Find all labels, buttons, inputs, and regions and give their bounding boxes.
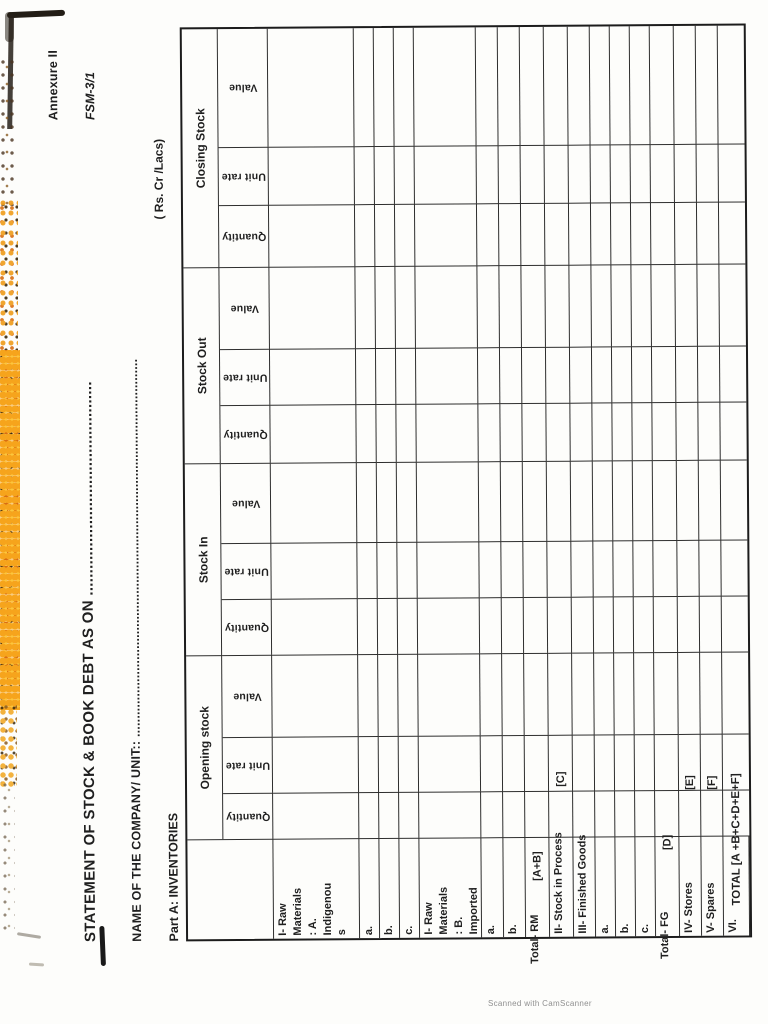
grid-cell [653, 460, 678, 540]
grid-cell [723, 733, 749, 789]
grid-cell [573, 735, 595, 791]
grid-cell [354, 28, 375, 146]
group-header-label: Stock Out [194, 337, 208, 394]
grid-cell [358, 654, 379, 736]
grid-cell [571, 461, 594, 541]
scan-speckle-strip [0, 350, 20, 710]
grid-cell [399, 792, 419, 838]
grid-cell [417, 541, 479, 597]
row-label-cell: Total- FG[D] [655, 836, 680, 936]
grid-cell [502, 653, 525, 735]
row-label-cell: b. [615, 836, 636, 936]
row-label: a. [595, 837, 613, 936]
row-label-cell: a. [481, 837, 504, 937]
grid-cell [722, 595, 748, 651]
grid-cell [500, 403, 522, 461]
grid-cell [268, 28, 355, 147]
grid-cell [634, 596, 654, 652]
grid-cell [501, 541, 523, 597]
group-header: Stock In [185, 463, 222, 655]
document-content: Annexure II FSM-3/1 STATEMENT OF STOCK &… [0, 0, 768, 1024]
grid-cell [525, 735, 549, 791]
grid-cell [720, 345, 746, 401]
grid-cell [395, 266, 416, 348]
grid-cell [356, 404, 376, 462]
grid-cell [651, 144, 675, 202]
grid-cell [698, 346, 720, 402]
grid-cell [721, 459, 748, 539]
grid-cell [503, 791, 525, 837]
grid-cell [520, 27, 545, 145]
grid-cell [270, 348, 356, 405]
grid-cell [593, 460, 614, 540]
column-header-label: Unit rate [221, 170, 265, 182]
grid-cell [398, 598, 418, 654]
grid-cell [397, 542, 417, 598]
column-header: Unit rate [223, 737, 273, 793]
grid-cell [545, 203, 569, 265]
grid-cell [615, 734, 635, 790]
grid-cell [270, 404, 356, 463]
column-header: Quantity [223, 793, 273, 839]
grid-cell [375, 146, 395, 204]
grid-cell [675, 144, 697, 202]
pen-dash-mark [99, 926, 106, 966]
grid-cell [269, 266, 356, 349]
grid-cell [503, 735, 525, 791]
row-label-cell: Total- RM[A+B] [525, 837, 550, 937]
grid-cell [652, 346, 676, 402]
grid-cell [594, 596, 614, 652]
grid-cell [653, 540, 677, 596]
form-number: FSM-3/1 [83, 72, 97, 120]
grid-cell [719, 143, 745, 201]
column-header-label: Unit rate [222, 371, 266, 383]
grid-cell [499, 265, 522, 347]
grid-cell [521, 265, 546, 347]
grid-cell [416, 347, 478, 403]
grid-cell [592, 346, 612, 402]
grid-cell [379, 792, 399, 838]
grid-cell [521, 145, 545, 203]
column-header: Unit rate [219, 147, 269, 205]
grid-cell [415, 265, 478, 347]
grid-cell [419, 791, 481, 837]
grid-cell [701, 790, 723, 836]
grid-cell [417, 461, 480, 541]
grid-cell [700, 652, 723, 734]
grid-cell [699, 460, 722, 540]
grid-cell [272, 654, 359, 737]
grid-cell [478, 403, 500, 461]
grid-cell [676, 402, 698, 460]
column-header-label: Value [228, 82, 257, 94]
grid-cell [477, 265, 500, 347]
grid-cell [271, 542, 357, 599]
grid-cell [610, 26, 631, 144]
grid-cell [594, 652, 615, 734]
grid-cell [612, 346, 632, 402]
grid-cell [479, 541, 501, 597]
row-label: I- Raw Materials : A. Indigenou s [273, 839, 350, 939]
grid-cell [522, 347, 546, 403]
grid-cell [612, 402, 632, 460]
grid-cell [631, 144, 651, 202]
row-label-cell: b. [503, 837, 526, 937]
grid-cell [522, 403, 546, 461]
column-header: Value [219, 267, 270, 349]
grid-cell [549, 735, 573, 791]
grid-cell [357, 462, 378, 542]
grid-cell [630, 26, 651, 144]
row-label-cell: c. [635, 836, 656, 936]
column-header: Quantity [220, 405, 270, 463]
scan-speckle-strip [2, 782, 15, 932]
grid-cell [376, 404, 396, 462]
grid-cell [499, 203, 521, 265]
camscanner-watermark: Scanned with CamScanner [488, 999, 592, 1008]
scan-speckle-strip [0, 700, 17, 788]
grid-cell [523, 461, 548, 541]
grid-cell [375, 266, 396, 348]
part-a-heading: Part A: INVENTORIES [166, 813, 181, 942]
row-label-cell: II- Stock in Process[C] [549, 837, 574, 937]
grid-cell [548, 597, 572, 653]
column-header-label: Unit rate [224, 565, 268, 577]
grid-cell [572, 597, 594, 653]
grid-cell [655, 734, 679, 790]
grid-cell [591, 144, 611, 202]
row-label: c. [399, 839, 417, 938]
column-header-label: Value [233, 690, 262, 702]
grid-cell [418, 597, 480, 653]
grid-cell [394, 28, 415, 146]
grid-cell [568, 27, 591, 145]
row-label: I- Raw Materials : B. Imported [419, 838, 481, 937]
grid-cell [378, 654, 399, 736]
scan-speckle-strip [0, 58, 17, 206]
grid-cell [271, 462, 358, 543]
grid-cell [395, 146, 415, 204]
column-header-label: Value [230, 302, 259, 314]
grid-cell [654, 596, 678, 652]
grid-cell [570, 347, 592, 403]
row-label: b. [615, 837, 633, 936]
grid-cell [480, 597, 502, 653]
grid-cell [395, 204, 415, 266]
grid-cell [569, 203, 591, 265]
column-header-label: Unit rate [225, 759, 269, 771]
grid-cell [571, 541, 593, 597]
grid-cell [611, 202, 631, 264]
grid-cell [477, 203, 499, 265]
grid-cell [635, 790, 655, 836]
grid-cell [655, 790, 679, 836]
inventories-table: Opening stockStock InStock OutClosing St… [180, 23, 752, 941]
grid-cell [697, 202, 719, 264]
grid-cell [650, 26, 675, 144]
grid-cell [481, 791, 503, 837]
grid-cell [273, 792, 359, 839]
grid-cell [569, 145, 591, 203]
grid-cell [398, 654, 419, 736]
grid-cell [544, 27, 569, 145]
row-label-cell: c. [399, 838, 420, 938]
scanned-page: Annexure II FSM-3/1 STATEMENT OF STOCK &… [0, 0, 768, 1024]
grid-cell [632, 402, 652, 460]
grid-cell [700, 596, 722, 652]
column-header: Value [222, 655, 273, 737]
grid-cell [677, 540, 699, 596]
row-label-cell: IV- Stores[E] [679, 836, 702, 936]
grid-cell [679, 790, 701, 836]
grid-cell [396, 348, 416, 404]
column-header: Quantity [222, 599, 272, 655]
grid-cell [378, 598, 398, 654]
row-label: II- Stock in Process [549, 838, 567, 937]
grid-cell [591, 202, 611, 264]
grid-cell [701, 734, 723, 790]
grid-cell [359, 792, 379, 838]
row-label-cell: I- Raw Materials : A. Indigenou s [273, 838, 360, 939]
grid-cell [376, 348, 396, 404]
grid-cell [613, 460, 634, 540]
grid-cell [592, 402, 612, 460]
group-header-label: Stock In [196, 536, 210, 583]
grid-cell [718, 25, 745, 143]
grid-cell [414, 27, 477, 145]
grid-cell [590, 26, 611, 144]
grid-cell [697, 144, 719, 202]
column-header: Value [221, 463, 272, 543]
grid-cell [273, 736, 359, 793]
row-label-cell: III- Finished Goods [573, 837, 596, 937]
grid-cell [500, 347, 522, 403]
grid-cell [549, 791, 573, 837]
row-label: a. [359, 839, 377, 938]
grid-cell [721, 539, 747, 595]
grid-cell [499, 145, 521, 203]
column-header-label: Value [231, 497, 260, 509]
grid-cell [654, 652, 679, 734]
grid-cell [476, 27, 499, 145]
grid-cell [573, 791, 595, 837]
grid-cell [355, 146, 375, 204]
grid-cell [358, 598, 378, 654]
grid-cell [572, 653, 595, 735]
grid-cell [674, 26, 697, 144]
row-label-cell: V- Spares[F] [701, 836, 724, 936]
grid-cell [723, 789, 749, 835]
grid-cell [651, 202, 675, 264]
group-header: Closing Stock [182, 29, 220, 267]
grid-cell [419, 735, 481, 791]
row-ref-label: [A+B] [531, 851, 543, 881]
column-header: Unit rate [220, 349, 270, 405]
grid-cell [374, 28, 395, 146]
grid-cell [379, 736, 399, 792]
grid-cell [498, 27, 521, 145]
grid-cell [631, 264, 652, 346]
row-label: III- Finished Goods [573, 838, 591, 937]
grid-cell [480, 653, 503, 735]
grid-cell [415, 145, 477, 203]
grid-cell [677, 460, 700, 540]
column-header: Quantity [219, 205, 269, 267]
grid-cell [678, 596, 700, 652]
row-label-cell: I- Raw Materials : B. Imported [419, 837, 482, 937]
group-header: Stock Out [183, 267, 220, 463]
grid-cell [399, 736, 419, 792]
annexure-label: Annexure II [46, 50, 60, 120]
column-header-label: Quantity [224, 621, 268, 633]
grid-cell [547, 461, 572, 541]
grid-cell [615, 790, 635, 836]
grid-cell [614, 596, 634, 652]
grid-cell [698, 402, 720, 460]
group-header: Opening stock [186, 655, 223, 839]
grid-cell [719, 263, 746, 345]
grid-cell [524, 597, 548, 653]
grid-cell [377, 462, 398, 542]
grid-cell [416, 403, 478, 461]
column-header-label: Quantity [226, 810, 270, 822]
grid-cell [375, 204, 395, 266]
grid-cell [676, 346, 698, 402]
grid-cell [397, 462, 418, 542]
grid-cell [720, 401, 746, 459]
grid-cell [570, 403, 592, 461]
column-header: Unit rate [221, 543, 271, 599]
row-label-cell: VI.TOTAL [A +B+C+D+E+F] [723, 835, 750, 935]
units-note: ( Rs. Cr /Lacs) [151, 139, 166, 220]
grid-cell [548, 653, 573, 735]
grid-cell [697, 264, 720, 346]
row-label: a. [481, 838, 499, 937]
row-label: Total- FG [655, 837, 673, 962]
grid-cell [478, 347, 500, 403]
column-header: Value [218, 29, 269, 147]
grid-cell [524, 653, 549, 735]
grid-cell [272, 598, 358, 655]
grid-cell [525, 791, 549, 837]
grid-cell [635, 734, 655, 790]
grid-cell [678, 652, 701, 734]
grid-cell [633, 460, 654, 540]
grid-cell [675, 202, 697, 264]
grid-cell [634, 652, 655, 734]
grid-cell [633, 540, 653, 596]
column-header-label: Quantity [222, 230, 266, 242]
grid-cell [396, 404, 416, 462]
grid-cell [595, 734, 615, 790]
row-label-cell: b. [379, 838, 400, 938]
group-header-label: Opening stock [197, 706, 212, 789]
row-label-cell: a. [359, 838, 380, 938]
grid-cell [546, 403, 570, 461]
grid-cell [521, 203, 545, 265]
grid-cell [355, 204, 375, 266]
grid-cell [523, 541, 547, 597]
grid-cell [611, 264, 632, 346]
grid-cell [545, 265, 570, 347]
grid-cell [418, 653, 481, 735]
row-label-cell: a. [595, 836, 616, 936]
grid-cell [502, 597, 524, 653]
row-label: V- Spares [701, 837, 719, 936]
grid-cell [651, 264, 676, 346]
grid-cell [611, 144, 631, 202]
grid-cell [591, 264, 612, 346]
table-corner-cell [187, 839, 274, 940]
grid-cell [696, 26, 719, 144]
grid-cell [477, 145, 499, 203]
grid-cell [675, 264, 698, 346]
column-header-label: Quantity [223, 428, 267, 440]
row-label: b. [503, 838, 521, 937]
grid-cell [357, 542, 377, 598]
grid-cell [481, 735, 503, 791]
grid-cell [569, 265, 592, 347]
grid-cell [377, 542, 397, 598]
grid-cell [593, 540, 613, 596]
grid-cell [359, 736, 379, 792]
grid-cell [269, 146, 355, 205]
grid-cell [595, 790, 615, 836]
grid-cell [613, 540, 633, 596]
row-label: IV- Stores [679, 837, 697, 936]
grid-cell [652, 402, 676, 460]
grid-cell [719, 201, 745, 263]
grid-cell [545, 145, 569, 203]
grid-cell [632, 346, 652, 402]
row-label: c. [635, 837, 653, 936]
grid-cell [546, 347, 570, 403]
grid-cell [415, 203, 477, 265]
document-title: STATEMENT OF STOCK & BOOK DEBT AS ON ...… [78, 381, 99, 942]
grid-cell [699, 540, 721, 596]
grid-cell [547, 541, 571, 597]
grid-cell [679, 734, 701, 790]
grid-cell [501, 461, 524, 541]
grid-cell [479, 461, 502, 541]
group-header-label: Closing Stock [193, 108, 208, 188]
scan-speckle-strip [0, 200, 18, 355]
row-ref-label: [D] [661, 835, 673, 850]
grid-cell [356, 348, 376, 404]
company-name-line: NAME OF THE COMPANY/ UNIT:: ............… [126, 359, 144, 942]
grid-cell [269, 204, 355, 267]
grid-cell [355, 266, 376, 348]
grid-cell [614, 652, 635, 734]
row-label: b. [379, 839, 397, 938]
grid-cell [631, 202, 651, 264]
grid-cell [722, 651, 749, 733]
